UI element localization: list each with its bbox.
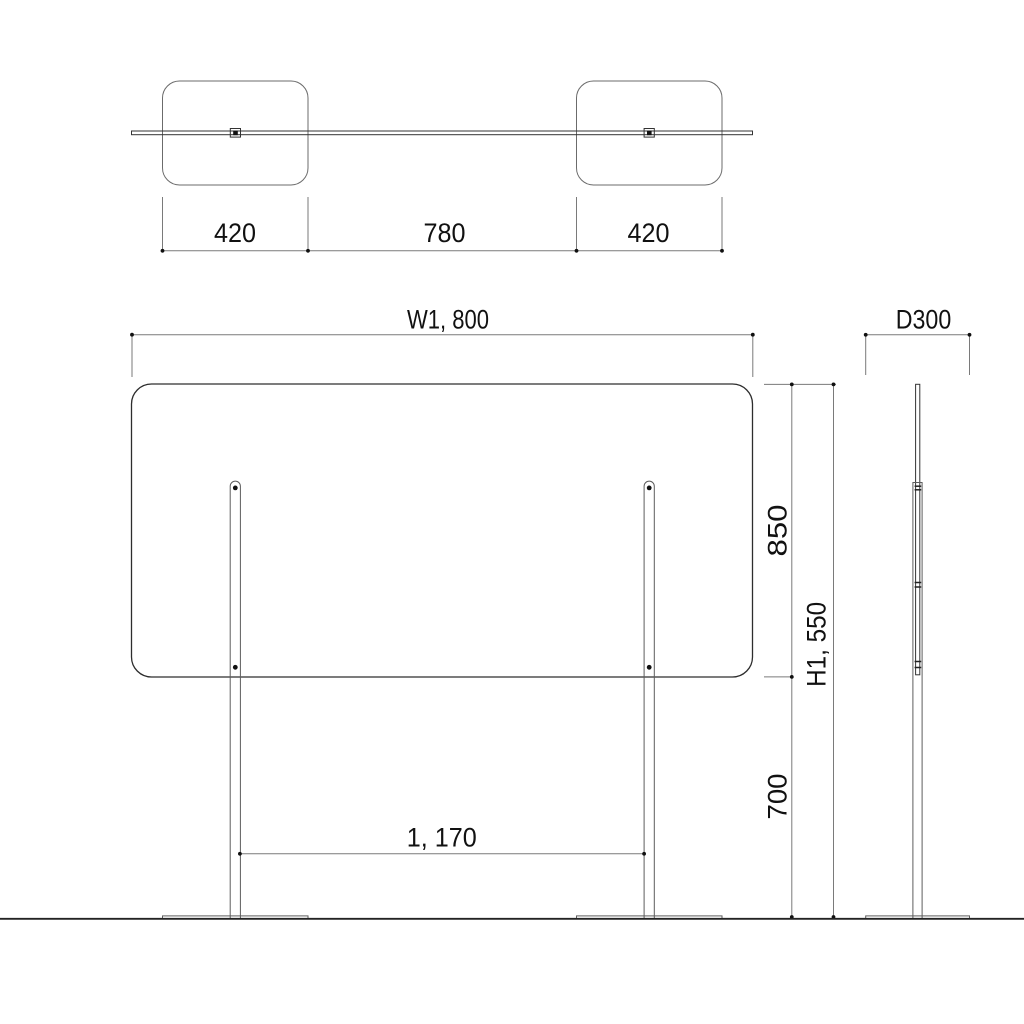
svg-text:H1, 550: H1, 550 bbox=[802, 602, 832, 687]
svg-text:W1, 800: W1, 800 bbox=[407, 305, 489, 335]
svg-text:420: 420 bbox=[628, 218, 670, 248]
svg-text:D300: D300 bbox=[896, 305, 952, 335]
svg-text:780: 780 bbox=[424, 218, 466, 248]
svg-text:1, 170: 1, 170 bbox=[407, 823, 477, 853]
svg-text:700: 700 bbox=[763, 774, 793, 820]
svg-text:420: 420 bbox=[214, 218, 256, 248]
svg-text:850: 850 bbox=[763, 505, 793, 557]
